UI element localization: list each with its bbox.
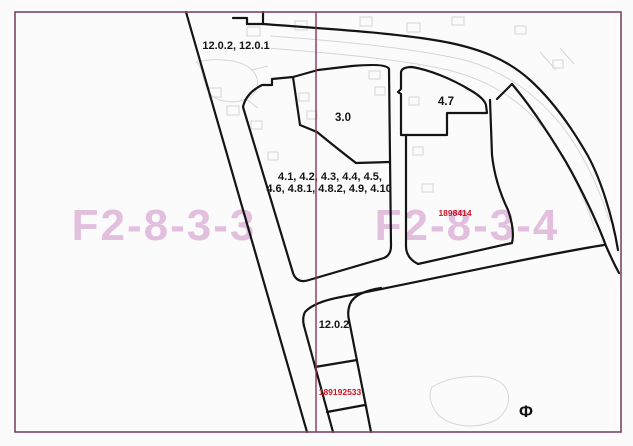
- watermark-left-sheet: F2-8-3-3: [72, 201, 257, 250]
- label-parcel-4-7: 4.7: [438, 96, 454, 108]
- phi-mark: Φ: [519, 402, 533, 421]
- cadastral-map-sheet: F2-8-3-3 F2-8-3-4 12.0.2, 12.0.1 3.0 4.7…: [0, 0, 633, 446]
- label-bottom-road: 12.0.2: [319, 319, 350, 331]
- label-top-road: 12.0.2, 12.0.1: [202, 40, 269, 52]
- label-parcel-3-0: 3.0: [335, 112, 351, 124]
- label-parcel-group-line1: 4.1, 4.2, 4.3, 4.4, 4.5,: [278, 171, 382, 183]
- red-id-upper: 1898414: [438, 208, 471, 218]
- label-parcel-group-line2: 4.6, 4.8.1, 4.8.2, 4.9, 4.10: [266, 183, 391, 195]
- red-id-lower: 189192533: [319, 387, 362, 397]
- cadastral-map: F2-8-3-3 F2-8-3-4 12.0.2, 12.0.1 3.0 4.7…: [0, 0, 633, 446]
